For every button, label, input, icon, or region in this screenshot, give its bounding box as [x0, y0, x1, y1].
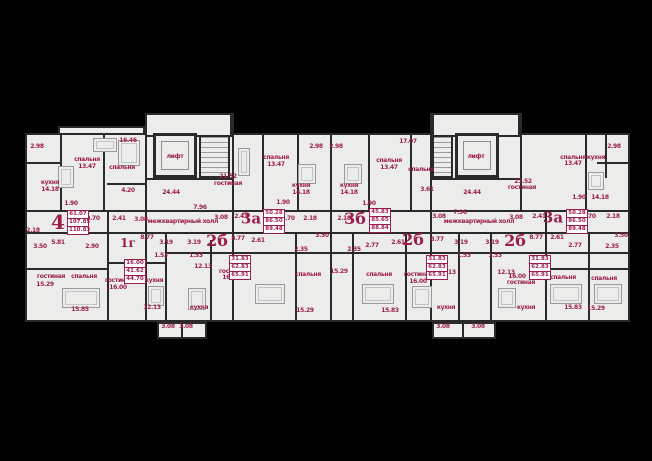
kitchen-table-icon — [498, 288, 516, 308]
wall — [232, 252, 630, 254]
area-value-label: 16.46 — [119, 138, 136, 144]
apartment-total_area: 89.48 — [264, 226, 284, 233]
room-name-label: спальня — [71, 274, 97, 280]
area-value-label: 8.77 — [231, 236, 245, 242]
apartment-total_area: 65.91 — [427, 272, 447, 279]
area-value-label: 15.29 — [296, 308, 313, 314]
apartment-living_area: 45.83 — [370, 209, 390, 217]
wall — [25, 210, 630, 212]
area-value-label: 12.13 — [143, 305, 160, 311]
area-value-label: 13.47 — [78, 164, 95, 170]
wall — [368, 133, 370, 210]
area-value-label: 3.50 — [614, 233, 628, 239]
area-value-label: 2.41 — [112, 216, 126, 222]
wall — [520, 113, 522, 212]
apartment-total_area: 88.84 — [370, 225, 390, 232]
room-name-label: спальня — [408, 167, 434, 173]
area-value-label: 3.08 — [161, 324, 175, 330]
room-name-label: гостиная — [507, 280, 535, 286]
apartment-area-box-apt-2b-right[interactable]: 31.8362.8365.91 — [529, 255, 551, 280]
wall — [145, 113, 147, 210]
room-name-label: спальня — [591, 276, 617, 282]
area-value-label: 3.19 — [187, 240, 201, 246]
area-value-label: 2.35 — [605, 244, 619, 250]
lift-label: лифт — [167, 154, 184, 160]
area-value-label: 8.77 — [140, 235, 154, 241]
apartment-living_area: 50.28 — [567, 210, 587, 218]
area-value-label: 3.08 — [471, 324, 485, 330]
bed-icon — [255, 284, 285, 304]
sofa-icon — [412, 286, 432, 308]
apartment-type-label-apt-3a-right[interactable]: 3а — [543, 211, 563, 226]
area-value-label: 3.08 — [134, 217, 148, 223]
apartment-living_area: 31.83 — [230, 256, 250, 264]
area-value-label: 1.53 — [189, 253, 203, 259]
area-value-label: 7.96 — [453, 210, 467, 216]
room-name-label: спальня — [366, 272, 392, 278]
bed-icon — [550, 284, 582, 304]
wall — [545, 268, 630, 270]
floor-plan-canvas: 2.98кухня14.18спальня13.4716.46спальня4.… — [0, 0, 652, 461]
area-value-label: 15.29 — [587, 306, 604, 312]
apartment-living_area: 31.83 — [427, 256, 447, 264]
bed-icon — [62, 288, 100, 308]
kitchen-table-icon — [588, 172, 604, 190]
area-value-label: 16.00 — [409, 279, 426, 285]
kitchen-table-icon — [344, 164, 362, 184]
wall — [462, 322, 464, 339]
area-value-label: 15.29 — [36, 282, 53, 288]
area-value-label: 15.83 — [381, 308, 398, 314]
area-value-label: 24.44 — [463, 190, 480, 196]
area-value-label: 3.19 — [159, 240, 173, 246]
room-name-label: спальня — [550, 275, 576, 281]
apartment-type-label-apt-1g[interactable]: 1г — [120, 237, 136, 249]
area-value-label: 12.13 — [194, 264, 211, 270]
area-value-label: 14.18 — [292, 190, 309, 196]
apartment-area-box-apt-2b-left[interactable]: 31.8362.8365.91 — [229, 255, 251, 280]
apartment-type-label-apt-3b[interactable]: 3б — [344, 211, 366, 227]
apartment-area-box-apt-2b-mid[interactable]: 31.8362.8365.91 — [426, 255, 448, 280]
area-value-label: 1.53 — [154, 253, 168, 259]
apartment-area: 62.83 — [427, 264, 447, 272]
kitchen-table-icon — [148, 286, 164, 306]
apartment-area: 86.50 — [567, 218, 587, 226]
apartment-area: 62.83 — [230, 264, 250, 272]
area-value-label: 13.47 — [380, 165, 397, 171]
room-name-label: гостиная — [508, 185, 536, 191]
hall-label: межквартирный холл — [444, 219, 514, 225]
apartment-living_area: 50.28 — [264, 210, 284, 218]
area-value-label: 15.29 — [330, 269, 347, 275]
apartment-area: 107.85 — [68, 219, 88, 227]
area-value-label: 13.47 — [564, 161, 581, 167]
area-value-label: 3.08 — [179, 324, 193, 330]
apartment-area: 62.83 — [530, 264, 550, 272]
staircase-icon — [199, 135, 230, 178]
wall — [107, 210, 109, 322]
area-value-label: 2.18 — [303, 216, 317, 222]
area-value-label: 4.20 — [121, 188, 135, 194]
area-value-label: 3.08 — [214, 215, 228, 221]
apartment-total_area: 89.48 — [567, 226, 587, 233]
apartment-type-label-apt-4[interactable]: 4 — [51, 212, 65, 232]
room-name-label: кухня — [145, 278, 163, 284]
staircase-icon — [432, 135, 453, 178]
room-name-label: кухня — [190, 305, 208, 311]
area-value-label: 8.77 — [529, 235, 543, 241]
room-name-label: кухня — [587, 155, 605, 161]
wall — [330, 133, 332, 322]
wall — [25, 162, 60, 164]
area-value-label: 2.98 — [607, 144, 621, 150]
desk-icon — [93, 138, 117, 152]
apartment-area-box-apt-3b[interactable]: 45.8385.6588.84 — [369, 208, 391, 233]
room-name-label: кухня — [517, 305, 535, 311]
area-value-label: 2.61 — [550, 235, 564, 241]
area-value-label: 3.08 — [432, 214, 446, 220]
area-value-label: 15.85 — [71, 307, 88, 313]
apartment-living_area: 16.00 — [125, 260, 145, 268]
wall — [605, 133, 607, 178]
area-value-label: 5.81 — [51, 240, 65, 246]
apartment-area-box-apt-4[interactable]: 61.07107.85110.83 — [67, 210, 89, 235]
wall — [432, 178, 520, 180]
area-value-label: 2.77 — [568, 243, 582, 249]
area-value-label: 2.35 — [347, 247, 361, 253]
wall — [597, 162, 630, 164]
area-value-label: 3.50 — [315, 233, 329, 239]
area-value-label: 14.18 — [591, 195, 608, 201]
bed-icon — [362, 284, 394, 304]
area-value-label: 1.53 — [457, 253, 471, 259]
room-name-label: гостиная — [37, 274, 65, 280]
apartment-area-box-apt-3a-center[interactable]: 50.2886.5089.48 — [263, 209, 285, 234]
area-value-label: 2.98 — [309, 144, 323, 150]
floor-area — [58, 126, 145, 135]
bed-icon — [594, 284, 622, 304]
area-value-label: 14.18 — [41, 187, 58, 193]
apartment-area-box-apt-1g[interactable]: 16.0041.6244.70 — [124, 259, 146, 284]
apartment-total_area: 65.91 — [230, 272, 250, 279]
area-value-label: 2.61 — [251, 238, 265, 244]
area-value-label: 8.77 — [430, 237, 444, 243]
floor-area — [25, 133, 630, 322]
area-value-label: 13.47 — [267, 162, 284, 168]
area-value-label: 7.96 — [193, 205, 207, 211]
apartment-area: 86.50 — [264, 218, 284, 226]
apartment-type-label-apt-2b-right[interactable]: 2б — [504, 233, 526, 249]
area-value-label: 17.07 — [399, 139, 416, 145]
area-value-label: 24.44 — [162, 190, 179, 196]
apartment-area: 41.62 — [125, 268, 145, 276]
apartment-type-label-apt-2b-mid[interactable]: 2б — [402, 232, 424, 248]
apartment-total_area: 110.83 — [68, 227, 88, 234]
area-value-label: 14.18 — [340, 190, 357, 196]
apartment-area-box-apt-3a-right[interactable]: 50.2886.5089.48 — [566, 209, 588, 234]
area-value-label: 3.19 — [454, 240, 468, 246]
sofa-icon — [238, 148, 250, 176]
area-value-label: 2.98 — [30, 144, 44, 150]
wall — [107, 183, 145, 185]
apartment-type-label-apt-3a-center[interactable]: 3а — [241, 212, 261, 227]
room-name-label: кухня — [437, 305, 455, 311]
apartment-living_area: 61.07 — [68, 211, 88, 219]
area-value-label: 1.90 — [276, 200, 290, 206]
area-value-label: 3.19 — [485, 240, 499, 246]
wall — [25, 268, 109, 270]
area-value-label: 1.53 — [488, 253, 502, 259]
apartment-living_area: 31.83 — [530, 256, 550, 264]
area-value-label: 15.83 — [564, 305, 581, 311]
kitchen-table-icon — [298, 164, 316, 184]
area-value-label: 2.98 — [329, 144, 343, 150]
area-value-label: 2.18 — [606, 214, 620, 220]
area-value-label: 1.90 — [362, 201, 376, 207]
apartment-total_area: 44.70 — [125, 276, 145, 283]
area-value-label: 3.61 — [420, 187, 434, 193]
lift-label: лифт — [468, 154, 485, 160]
area-value-label: 3.08 — [436, 324, 450, 330]
area-value-label: 1.90 — [64, 201, 78, 207]
room-name-label: гостиная — [214, 181, 242, 187]
area-value-label: 2.35 — [294, 247, 308, 253]
room-name-label: спальня — [295, 272, 321, 278]
area-value-label: 1.90 — [572, 195, 586, 201]
area-value-label: 3.08 — [509, 215, 523, 221]
wall — [262, 133, 264, 210]
apartment-type-label-apt-2b-left[interactable]: 2б — [206, 233, 228, 249]
area-value-label: 2.77 — [365, 243, 379, 249]
room-name-label: спальня — [109, 165, 135, 171]
area-value-label: 3.50 — [33, 244, 47, 250]
area-value-label: 16.00 — [109, 285, 126, 291]
hall-label: межквартирный холл — [148, 219, 218, 225]
area-value-label: 2.90 — [85, 244, 99, 250]
apartment-total_area: 65.91 — [530, 272, 550, 279]
kitchen-table-icon — [58, 166, 74, 188]
area-value-label: 2.18 — [26, 228, 40, 234]
apartment-area: 85.65 — [370, 217, 390, 225]
